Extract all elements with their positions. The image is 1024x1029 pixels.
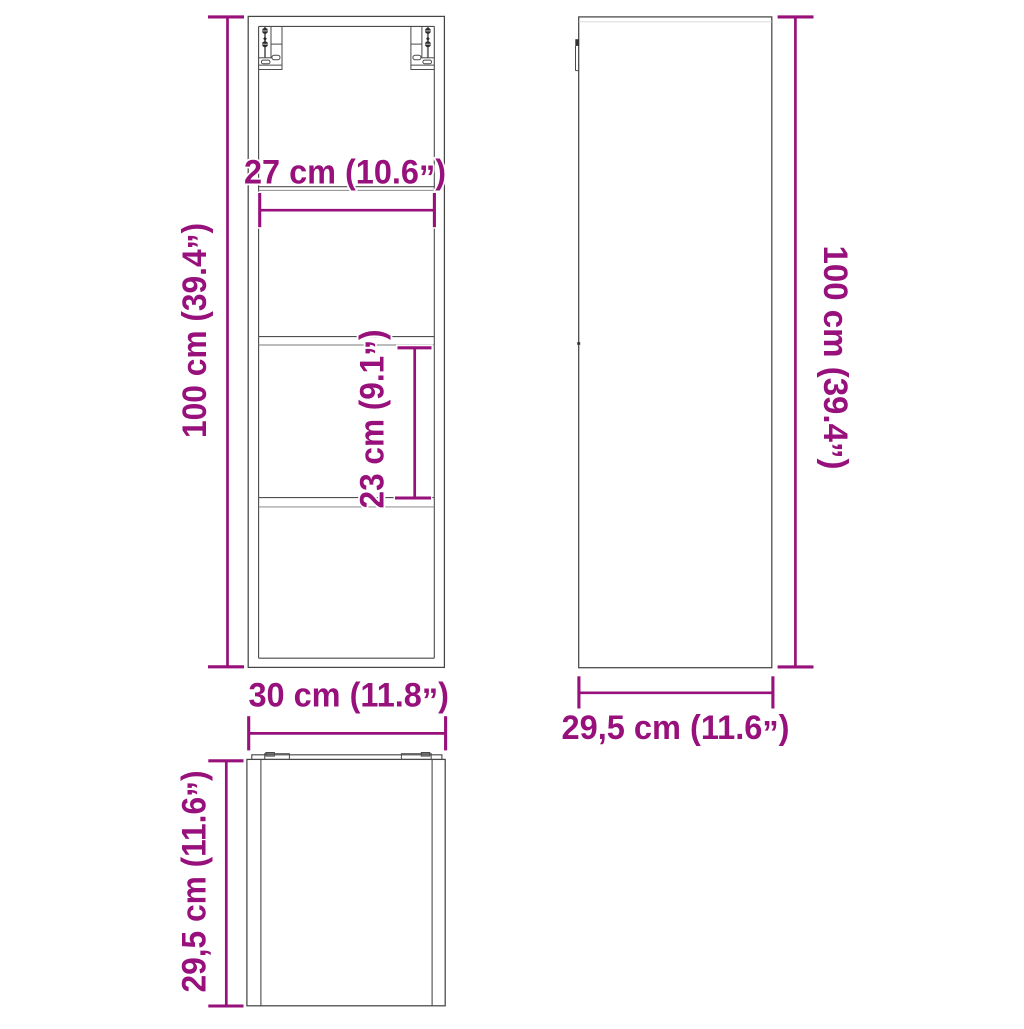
svg-text:23 cm (9.1”): 23 cm (9.1”) bbox=[354, 330, 398, 509]
svg-text:30 cm (11.8”): 30 cm (11.8”) bbox=[248, 677, 449, 721]
svg-text:29,5 cm (11.6”): 29,5 cm (11.6”) bbox=[176, 771, 220, 993]
svg-text:27 cm (10.6”): 27 cm (10.6”) bbox=[244, 154, 446, 198]
svg-text:100 cm (39.4”): 100 cm (39.4”) bbox=[176, 223, 220, 438]
svg-text:29,5 cm (11.6”): 29,5 cm (11.6”) bbox=[562, 709, 790, 753]
svg-text:100 cm (39.4”): 100 cm (39.4”) bbox=[811, 246, 855, 470]
